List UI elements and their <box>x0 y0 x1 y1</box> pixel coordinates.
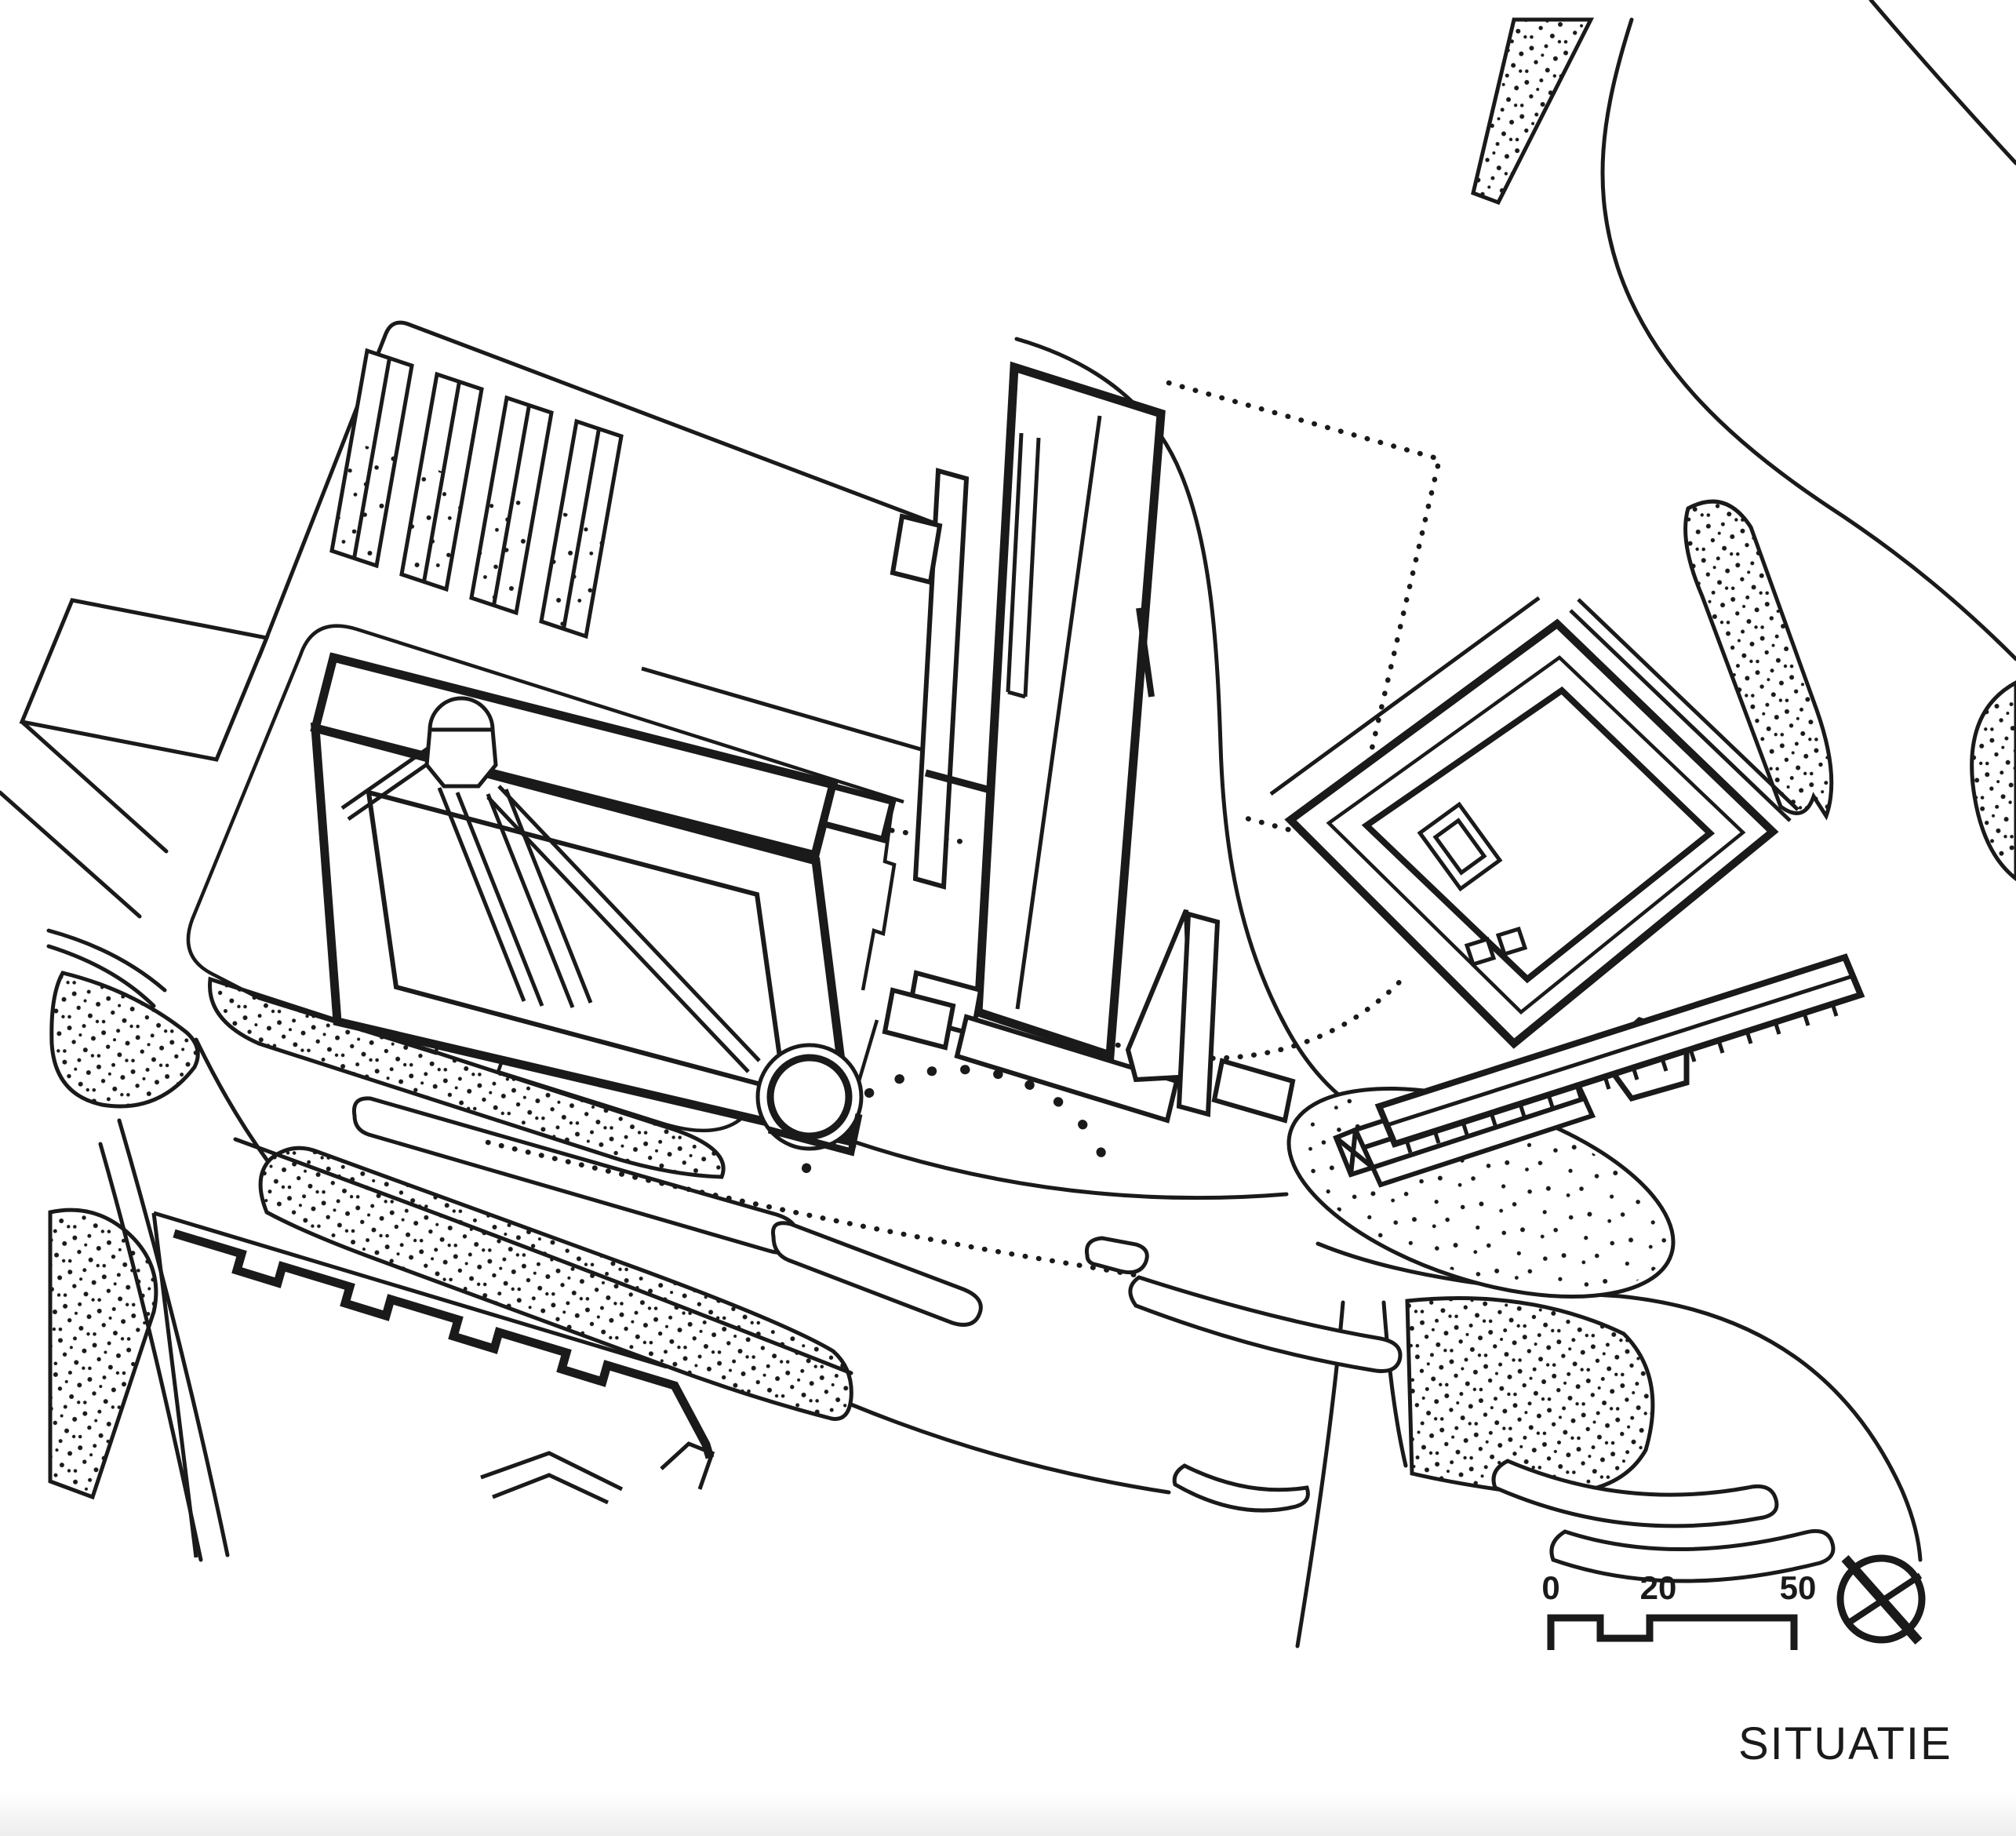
base-box-east <box>1214 1061 1293 1120</box>
parking-strip-pair-4 <box>541 421 621 636</box>
west-parcel-outline <box>22 600 267 760</box>
road-curve-top-corner <box>1871 0 2016 163</box>
slab-outline <box>978 367 1161 1055</box>
verge-right-edge-blob <box>1972 683 2016 879</box>
scale-label-50: 50 <box>1780 1569 1817 1606</box>
wing-chimney-2 <box>1498 929 1525 954</box>
parking-strip-pair-3 <box>471 398 551 613</box>
verge-junction-blob <box>1407 1299 1653 1495</box>
site-plan-drawing: 0 20 50 SITUATIE <box>0 0 2016 1836</box>
road-curve-top-right <box>1603 20 2016 659</box>
verge-quarter-disc-upper <box>52 973 198 1106</box>
block-inner-roofs <box>481 1444 712 1503</box>
verge-quarter-disc-lower <box>50 1210 156 1497</box>
scale-label-20: 20 <box>1640 1569 1677 1606</box>
median-blob <box>1086 1238 1147 1273</box>
wing-chimney-1 <box>1467 939 1494 964</box>
roof-chevron-2 <box>493 1475 608 1503</box>
parking-access-line <box>642 668 940 755</box>
tower-inner-ring <box>770 1058 849 1136</box>
site-plan-page: 0 20 50 SITUATIE <box>0 0 2016 1836</box>
roof-corner <box>661 1444 712 1489</box>
parking-strip-pair-1 <box>332 351 412 566</box>
median-strip-3 <box>1130 1277 1400 1372</box>
road-edge-lower <box>851 1404 1169 1492</box>
apse-chapel <box>427 698 496 786</box>
apse-body <box>427 730 496 786</box>
road-vertical-right-edge <box>1384 1302 1406 1466</box>
verge-top-right-trapezoid <box>1473 20 1591 202</box>
drawing-title: SITUATIE <box>1738 1718 1952 1769</box>
median-arc-1 <box>1494 1461 1777 1526</box>
median-strip-2 <box>773 1223 981 1325</box>
median-arc-small <box>1174 1466 1308 1510</box>
scale-bar-shape <box>1551 1618 1794 1650</box>
scale-label-0: 0 <box>1541 1569 1559 1606</box>
roof-chevron-1 <box>481 1453 622 1489</box>
north-arrow-icon <box>1840 1558 1922 1641</box>
annex-box-1 <box>893 516 940 582</box>
wing-ridge <box>1387 976 1853 1125</box>
page-bottom-fade <box>0 1792 2016 1836</box>
west-parcel <box>22 600 267 760</box>
main-building-group <box>188 626 904 1152</box>
slab-building-group <box>885 367 1293 1120</box>
sail-strip <box>1179 914 1217 1114</box>
parking-strip-pair-2 <box>402 374 482 589</box>
road-mid-edge <box>196 1040 267 1160</box>
